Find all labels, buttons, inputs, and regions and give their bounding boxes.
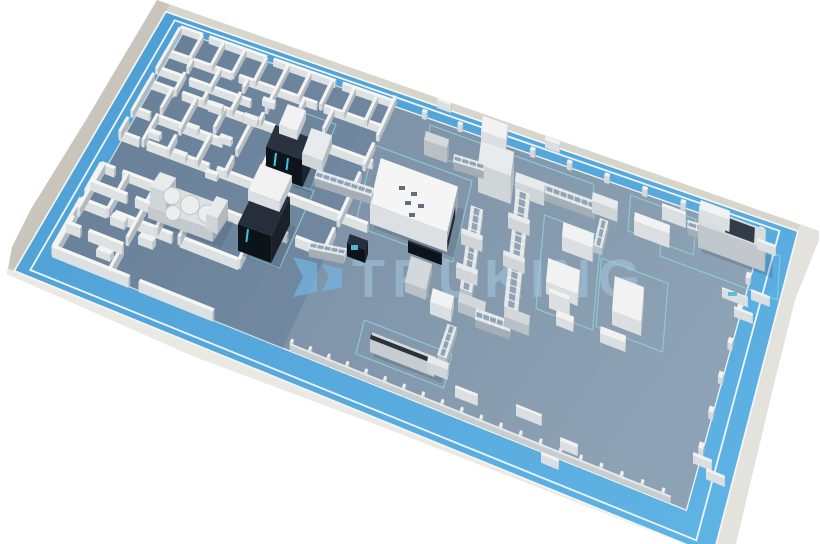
svg-text:TRUKING: TRUKING bbox=[352, 249, 647, 309]
